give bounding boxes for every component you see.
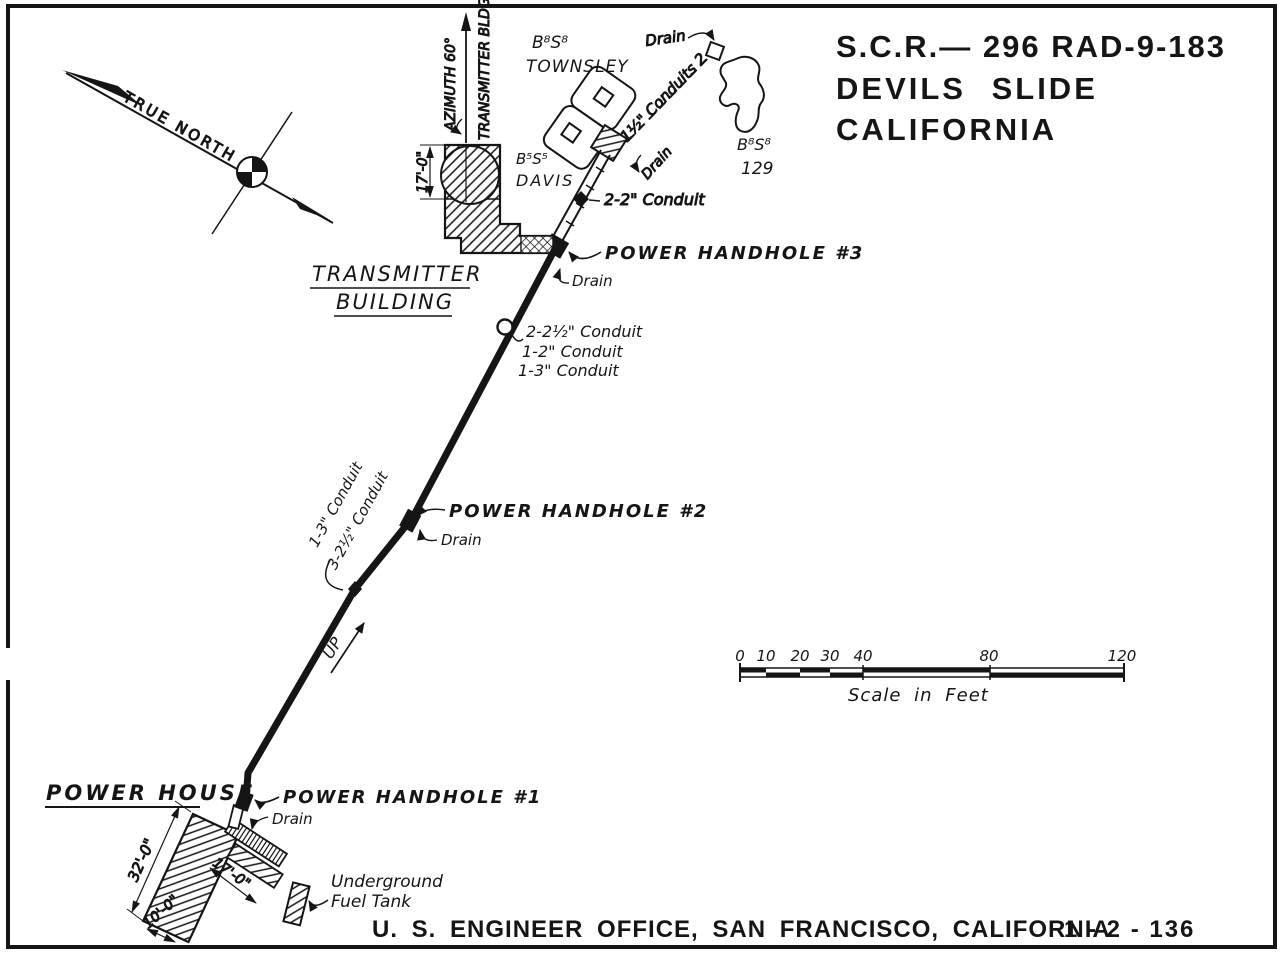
fuel-tank-label-line2: Fuel Tank bbox=[331, 892, 412, 912]
power-house-label: POWER HOUSE bbox=[46, 781, 255, 805]
border-frame bbox=[0, 6, 1275, 947]
power-house: POWER HOUSE 32'-0" 17'-0" 10'-0" bbox=[45, 781, 287, 942]
davis-designation: B⁵S⁵ bbox=[516, 150, 548, 168]
main-conduit-line: 2-2½" Conduit 1-2" Conduit 1-3" Conduit … bbox=[246, 247, 643, 800]
power-house-dim-long: 32'-0" bbox=[124, 836, 159, 885]
azimuth-arrow: AZIMUTH 60° TRANSMITTER BLDG. bbox=[443, 0, 493, 143]
antenna-mount-circle bbox=[441, 146, 499, 204]
scale-tick-80: 80 bbox=[979, 647, 998, 665]
scale-tick-120: 120 bbox=[1108, 647, 1137, 665]
conduit-node-circle bbox=[498, 320, 513, 335]
footer-office: U. S. ENGINEER OFFICE, SAN FRANCISCO, CA… bbox=[372, 916, 1111, 943]
drain-box bbox=[706, 42, 724, 60]
scale-tick-20: 20 bbox=[790, 647, 809, 665]
handhole-2-label: POWER HANDHOLE #2 bbox=[449, 501, 708, 522]
handhole-1-label: POWER HANDHOLE #1 bbox=[283, 787, 542, 808]
azimuth-angle-label: AZIMUTH 60° bbox=[443, 37, 459, 132]
handhole-3-label: POWER HANDHOLE #3 bbox=[605, 243, 864, 264]
drain-label-h1: Drain bbox=[272, 810, 313, 828]
conduit-joint-marker bbox=[573, 191, 589, 207]
scale-tick-30: 30 bbox=[820, 647, 839, 665]
title-block: S.C.R.— 296 RAD-9-183 DEVILS SLIDE CALIF… bbox=[836, 29, 1226, 147]
true-north-label: TRUE NORTH bbox=[119, 87, 240, 166]
true-north-compass: TRUE NORTH bbox=[62, 70, 333, 234]
mid-conduit-label-1: 2-2½" Conduit bbox=[526, 322, 643, 341]
footer-drawing-number: 1 - 2 - 136 bbox=[1064, 916, 1195, 943]
title-line3: CALIFORNIA bbox=[836, 112, 1057, 147]
power-handhole-1: POWER HANDHOLE #1 Drain bbox=[228, 787, 542, 829]
azimuth-arrowhead bbox=[461, 12, 471, 31]
scale-caption: Scale in Feet bbox=[848, 685, 989, 706]
azimuth-bldg-label: TRANSMITTER BLDG. bbox=[477, 0, 493, 140]
drawing-canvas: S.C.R.— 296 RAD-9-183 DEVILS SLIDE CALIF… bbox=[0, 0, 1283, 956]
transmitter-label-line1: TRANSMITTER bbox=[312, 262, 483, 286]
title-line2: DEVILS SLIDE bbox=[836, 71, 1098, 106]
drain-label-terminal: Drain bbox=[638, 144, 675, 183]
transmitter-height-dim: 17'-0" bbox=[415, 151, 431, 193]
north-barb bbox=[292, 197, 330, 220]
dashed-conduit-run: Drain 1½" Conduits 2 bbox=[617, 26, 724, 145]
scale-bar: 0 10 20 30 40 80 120 Scale in Feet bbox=[735, 647, 1136, 706]
transmitter-label-line2: BUILDING bbox=[336, 290, 454, 314]
scale-bar-segments bbox=[740, 668, 1124, 677]
townsley-name: TOWNSLEY bbox=[526, 57, 629, 77]
fuel-tank-label-line1: Underground bbox=[331, 872, 443, 892]
power-handhole-3: POWER HANDHOLE #3 Drain bbox=[543, 233, 864, 290]
building-annex bbox=[521, 236, 553, 253]
mid-conduit-label-2: 1-2" Conduit bbox=[522, 342, 623, 361]
site-plan-drawing: S.C.R.— 296 RAD-9-183 DEVILS SLIDE CALIF… bbox=[0, 0, 1283, 956]
scale-tick-40: 40 bbox=[853, 647, 872, 665]
border-gap bbox=[0, 648, 14, 680]
drain-label-top: Drain bbox=[644, 26, 687, 49]
davis-name: DAVIS bbox=[516, 171, 574, 190]
upper-conduit-label: 2-2" Conduit bbox=[604, 190, 705, 209]
townsley-designation: B⁸S⁸ bbox=[532, 33, 568, 53]
scale-tick-10: 10 bbox=[756, 647, 775, 665]
drain-label-h2: Drain bbox=[441, 531, 482, 549]
b129-number: 129 bbox=[741, 159, 773, 179]
drain-label-h3: Drain bbox=[572, 272, 613, 290]
power-handhole-2: POWER HANDHOLE #2 Drain bbox=[399, 501, 708, 549]
battery-129-outline: B⁸S⁸ 129 bbox=[720, 57, 774, 179]
footer-title: U. S. ENGINEER OFFICE, SAN FRANCISCO, CA… bbox=[372, 916, 1195, 943]
b129-designation: B⁸S⁸ bbox=[737, 135, 772, 154]
fuel-tank-shape bbox=[283, 882, 309, 925]
scale-tick-0: 0 bbox=[735, 647, 745, 665]
mid-conduit-label-3: 1-3" Conduit bbox=[518, 361, 619, 380]
title-line1: S.C.R.— 296 RAD-9-183 bbox=[836, 29, 1226, 64]
